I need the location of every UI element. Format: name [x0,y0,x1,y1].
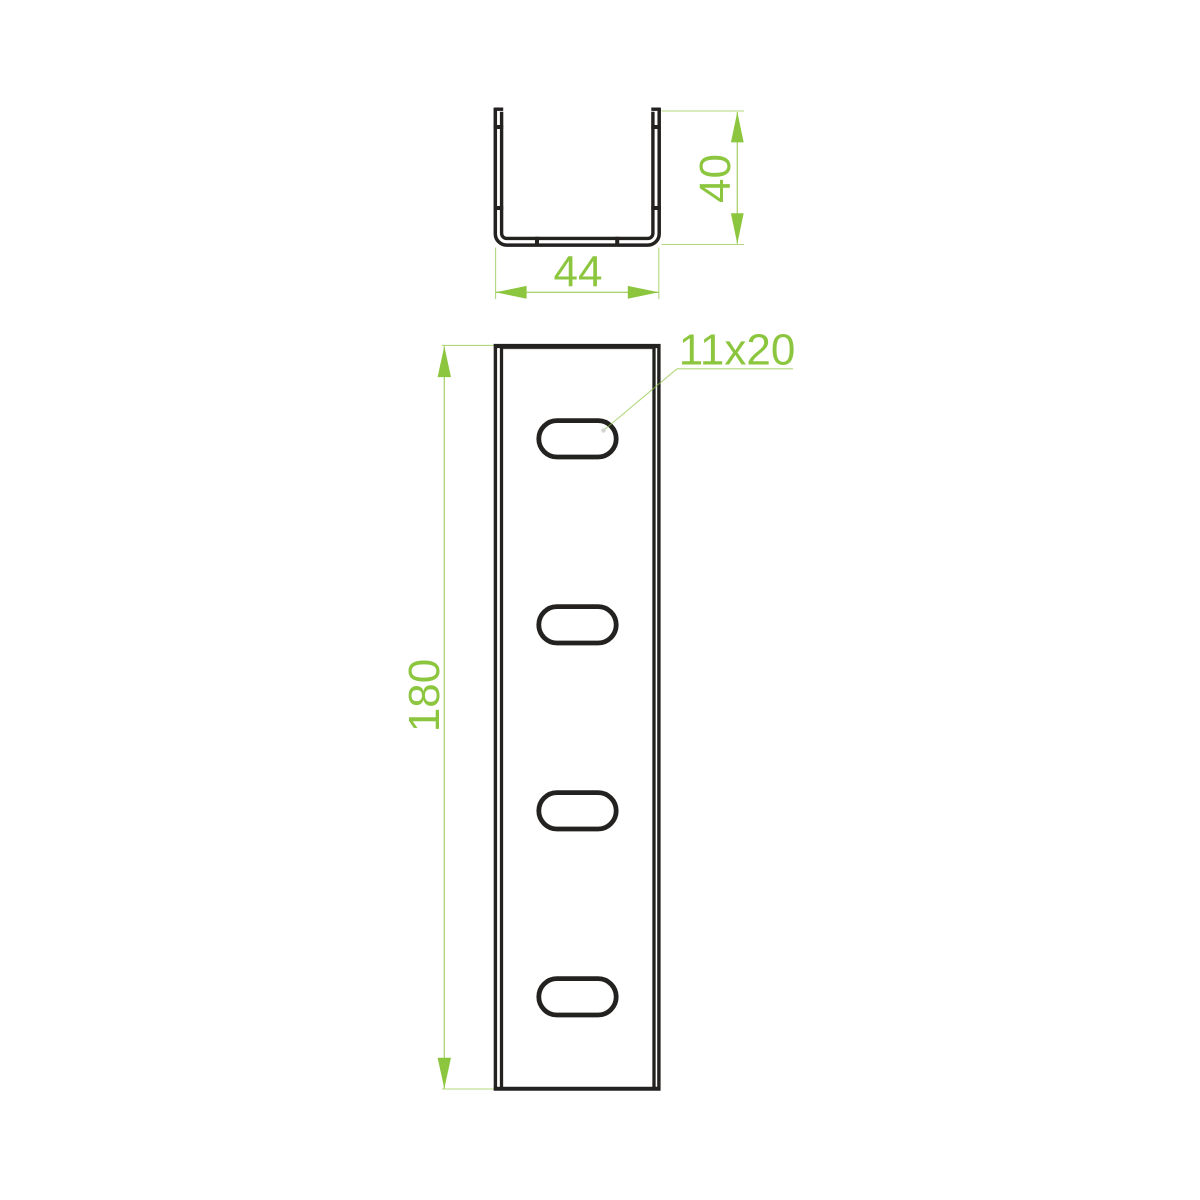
svg-text:44: 44 [554,248,603,297]
svg-text:180: 180 [400,659,449,732]
svg-text:40: 40 [691,154,740,203]
svg-text:11x20: 11x20 [679,325,796,374]
